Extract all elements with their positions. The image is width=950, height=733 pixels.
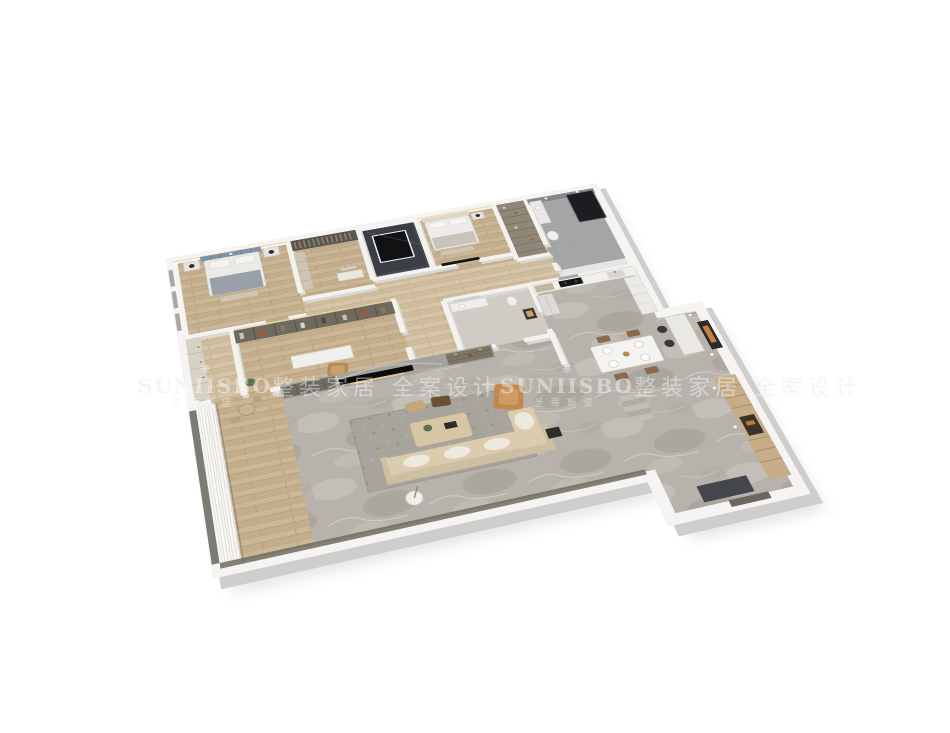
- floorplan-3d-render: [146, 163, 853, 665]
- render-canvas: { "scene": { "description": "3D axonomet…: [0, 0, 950, 733]
